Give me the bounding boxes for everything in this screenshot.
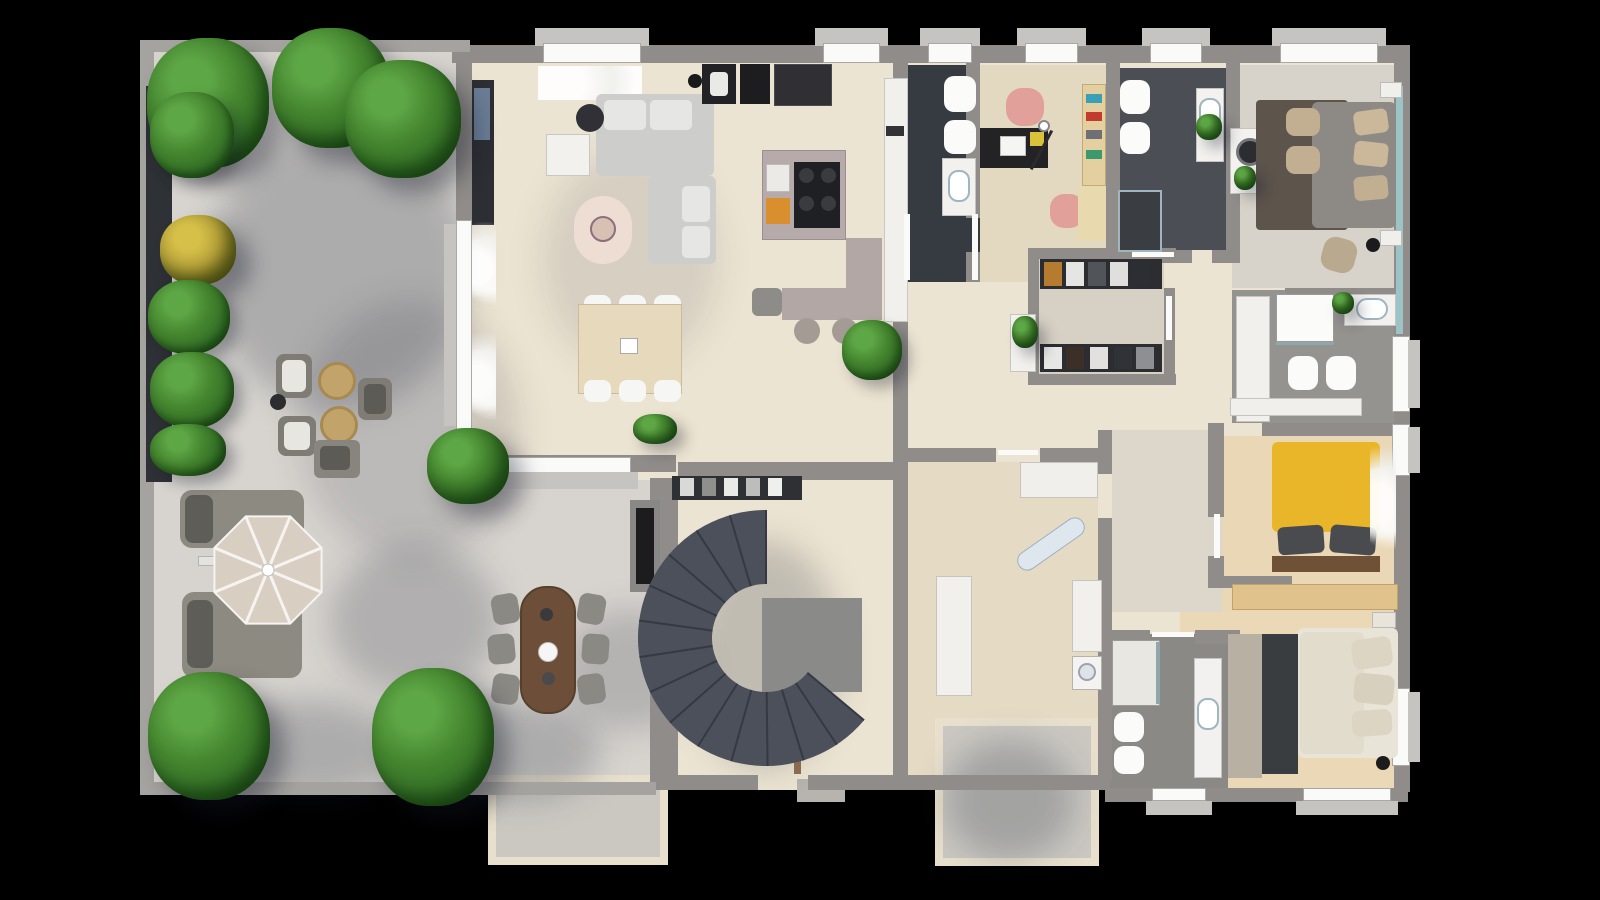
kitchen-hood bbox=[688, 74, 702, 88]
bath4-shower-glass bbox=[1156, 642, 1160, 704]
dining-centerpiece bbox=[620, 338, 638, 354]
closet-cloth-6 bbox=[1044, 347, 1062, 369]
bath2-plant bbox=[1196, 114, 1222, 140]
laundry-door-leaf bbox=[998, 450, 1038, 455]
appliance-cabinet bbox=[740, 64, 770, 104]
jute-rug-1 bbox=[318, 362, 356, 400]
laundry-top-counter bbox=[1020, 462, 1098, 498]
bedroom3-door bbox=[1152, 632, 1194, 637]
wall-yellow-left-a bbox=[1208, 423, 1224, 517]
bedroom3-taupe-cabinet bbox=[1228, 634, 1262, 778]
lantern bbox=[270, 394, 286, 410]
wall-bottom-stair-b bbox=[808, 775, 1110, 790]
closet-cloth-4 bbox=[1110, 262, 1128, 286]
sofa-cushion-2 bbox=[650, 100, 692, 130]
appliance-fridge bbox=[774, 64, 832, 106]
ensuite-toilet bbox=[1288, 356, 1318, 390]
bath2-shower bbox=[1118, 190, 1162, 252]
counter-item-dark bbox=[886, 126, 904, 136]
indoor-palm bbox=[842, 320, 902, 380]
bookshelf-book-1 bbox=[1086, 94, 1102, 103]
master-pillow-1 bbox=[1352, 108, 1389, 136]
wall-bottom-stair-a bbox=[650, 775, 758, 790]
tree-bottom-2 bbox=[372, 668, 494, 806]
closet-cloth-3 bbox=[1088, 262, 1106, 286]
terrace-umbrella bbox=[205, 507, 331, 633]
outdoor-chair-2 bbox=[487, 633, 517, 665]
closet-door bbox=[1166, 296, 1172, 340]
bedroom-corridor-floor bbox=[1112, 430, 1222, 612]
long-desk bbox=[1232, 584, 1398, 610]
window-frame-bottom-2 bbox=[1303, 788, 1391, 801]
curtain-left-1 bbox=[472, 222, 496, 314]
bar-counter-horizontal bbox=[782, 288, 882, 320]
bookshelf-book-3 bbox=[1086, 130, 1102, 139]
slider-frame-left bbox=[456, 220, 472, 430]
outdoor-chair-6 bbox=[576, 672, 607, 705]
master-pillow-3 bbox=[1353, 175, 1389, 202]
daybed-small-cushion bbox=[320, 446, 350, 470]
master-nightstand-2 bbox=[1380, 230, 1402, 246]
appliance-jug bbox=[710, 72, 728, 96]
window-sill-right-2 bbox=[1408, 427, 1420, 473]
ensuite-shower bbox=[1276, 294, 1334, 342]
office-laptop bbox=[1000, 136, 1026, 156]
window-frame-bottom-1 bbox=[1152, 788, 1206, 801]
tree-top-3 bbox=[345, 60, 461, 178]
ensuite-plant bbox=[1332, 292, 1354, 314]
outdoor-chair-5 bbox=[581, 633, 610, 665]
yellow-bed-pillow-1 bbox=[1277, 524, 1325, 555]
sofa-cushion-1 bbox=[604, 100, 646, 130]
shoe-pair-1 bbox=[680, 478, 694, 496]
sideboard-glass bbox=[474, 88, 490, 140]
planter-plant-2 bbox=[148, 280, 230, 354]
laundry-cabinet-right bbox=[1072, 580, 1102, 652]
window-sill-living-bottom bbox=[498, 472, 638, 489]
curtain-left-2 bbox=[472, 332, 496, 430]
bedroom3-pillow-1 bbox=[1350, 635, 1394, 670]
coffee-table-deco bbox=[590, 216, 616, 242]
yellow-bed-headboard bbox=[1272, 556, 1380, 572]
ensuite-bidet bbox=[1326, 356, 1356, 390]
bath2-door bbox=[1132, 252, 1174, 257]
wall-bath2-bottom-b bbox=[1212, 250, 1240, 263]
bath4-sink bbox=[1197, 698, 1219, 730]
bath1-door-2 bbox=[972, 214, 978, 280]
dining-chair-6 bbox=[654, 380, 681, 402]
tree-mid-small bbox=[427, 428, 509, 504]
bedroom3-nightstand bbox=[1372, 612, 1396, 628]
outdoor-chair-4 bbox=[576, 592, 608, 626]
sofa-cushion-4 bbox=[682, 226, 710, 258]
bath4-shower bbox=[1112, 640, 1160, 706]
closet-cloth-2 bbox=[1066, 262, 1084, 286]
outdoor-chair-1 bbox=[490, 592, 522, 626]
closet-plant bbox=[1012, 316, 1038, 348]
closet-cloth-7 bbox=[1066, 347, 1084, 369]
armchair-out-3-cushion bbox=[364, 384, 386, 414]
hob-burner-4 bbox=[821, 196, 836, 211]
master-ottoman-1 bbox=[1286, 108, 1320, 136]
master-floor-lamp bbox=[1366, 238, 1380, 252]
kitchen-back-counter bbox=[884, 78, 908, 322]
window-sill-right-1 bbox=[1408, 340, 1420, 408]
window-sill-bottom-2 bbox=[1296, 801, 1398, 815]
window-sill-bottom-1 bbox=[1146, 801, 1212, 815]
office-lamp-head bbox=[1038, 120, 1050, 132]
armchair-out-2-cushion bbox=[284, 422, 310, 450]
tree-bottom-1 bbox=[148, 672, 270, 800]
bath2-bidet bbox=[1120, 122, 1150, 154]
outdoor-table-lamp bbox=[538, 642, 558, 662]
glass-master-right bbox=[1396, 86, 1403, 334]
wall-yellow-top bbox=[1262, 423, 1408, 436]
side-table-white bbox=[546, 134, 590, 176]
master-ottoman-2 bbox=[1286, 146, 1320, 174]
planter-plant-1 bbox=[150, 92, 234, 178]
sofa-cushion-3 bbox=[682, 186, 710, 222]
ensuite-dresser bbox=[1230, 398, 1362, 416]
window-frame-top-6 bbox=[1280, 43, 1378, 63]
wall-closet-bottom bbox=[1028, 374, 1176, 385]
shoe-pair-3 bbox=[724, 478, 738, 496]
laundry-tall-cabinet bbox=[936, 576, 972, 696]
shoe-pair-2 bbox=[702, 478, 716, 496]
planter-plant-4 bbox=[150, 424, 226, 476]
master-pillow-2 bbox=[1353, 140, 1389, 167]
bath1-bidet bbox=[944, 120, 976, 154]
yellow-door-leaf bbox=[1214, 514, 1220, 558]
bedroom3-pillow-3 bbox=[1351, 709, 1393, 738]
bath2-toilet bbox=[1120, 80, 1150, 114]
dining-chair-4 bbox=[584, 380, 611, 402]
hob-burner-2 bbox=[821, 168, 836, 183]
bath1-toilet bbox=[944, 76, 976, 112]
window-frame-top-5 bbox=[1150, 43, 1202, 63]
wall-laundry-top-b bbox=[1040, 448, 1098, 462]
corner-bush bbox=[633, 414, 677, 444]
closet-cloth-1 bbox=[1044, 262, 1062, 286]
window-frame-top-2 bbox=[823, 43, 880, 63]
dining-chair-5 bbox=[619, 380, 646, 402]
bath1-door-1 bbox=[904, 214, 910, 280]
wall-laundry-right-a bbox=[1098, 430, 1112, 474]
bath1-sink bbox=[948, 170, 970, 202]
bar-stool-1 bbox=[794, 318, 820, 344]
window-sill-right-3 bbox=[1408, 692, 1420, 762]
bookshelf-book-4 bbox=[1086, 150, 1102, 159]
closet-cloth-8 bbox=[1090, 347, 1108, 369]
hob-burner-3 bbox=[799, 196, 814, 211]
ensuite-shower-glass bbox=[1276, 342, 1334, 345]
office-chair-1 bbox=[1006, 88, 1044, 126]
shoe-pair-5 bbox=[768, 478, 782, 496]
pouf-round bbox=[576, 104, 604, 132]
curtain-yellow-room bbox=[1370, 446, 1396, 562]
bedroom3-wardrobe bbox=[1262, 634, 1298, 774]
closet-cloth-9 bbox=[1114, 347, 1132, 369]
wall-laundry-top-a bbox=[908, 448, 996, 462]
planter-plant-3 bbox=[150, 352, 234, 428]
kitchen-stool-square bbox=[752, 288, 782, 316]
wall-mid-vert-c bbox=[893, 480, 908, 777]
washer-door bbox=[1078, 663, 1096, 681]
floorplan bbox=[0, 0, 1600, 900]
bath4-toilet bbox=[1114, 712, 1144, 742]
master-nightstand-1 bbox=[1380, 82, 1402, 98]
cutting-board-white bbox=[766, 164, 790, 192]
shoe-pair-4 bbox=[746, 478, 760, 496]
armchair-out-1-cushion bbox=[282, 360, 306, 392]
food-board-orange bbox=[766, 198, 790, 224]
bedroom3-floor-lamp bbox=[1376, 756, 1390, 770]
closet-cloth-5 bbox=[1132, 262, 1150, 286]
ensuite-sink bbox=[1356, 298, 1388, 320]
office-desk-2 bbox=[1078, 186, 1106, 240]
bedroom3-pillow-2 bbox=[1353, 672, 1396, 706]
window-frame-top-1 bbox=[543, 43, 641, 63]
bookshelf-book-2 bbox=[1086, 112, 1102, 121]
outdoor-table-bowl-1 bbox=[540, 608, 553, 621]
yellow-bed-blanket bbox=[1272, 442, 1380, 532]
bath4-bidet bbox=[1114, 746, 1144, 774]
outdoor-table-bowl-2 bbox=[542, 672, 555, 685]
hob-burner-1 bbox=[799, 168, 814, 183]
window-frame-top-3 bbox=[928, 43, 972, 63]
console-plant bbox=[1234, 166, 1256, 190]
closet-cloth-10 bbox=[1136, 347, 1154, 369]
jute-rug-2 bbox=[320, 406, 358, 444]
entry-landing bbox=[935, 718, 1099, 866]
outdoor-chair-3 bbox=[490, 672, 521, 705]
shrub-yellow bbox=[160, 215, 236, 285]
spiral-staircase bbox=[638, 510, 894, 766]
window-frame-top-4 bbox=[1025, 43, 1078, 63]
